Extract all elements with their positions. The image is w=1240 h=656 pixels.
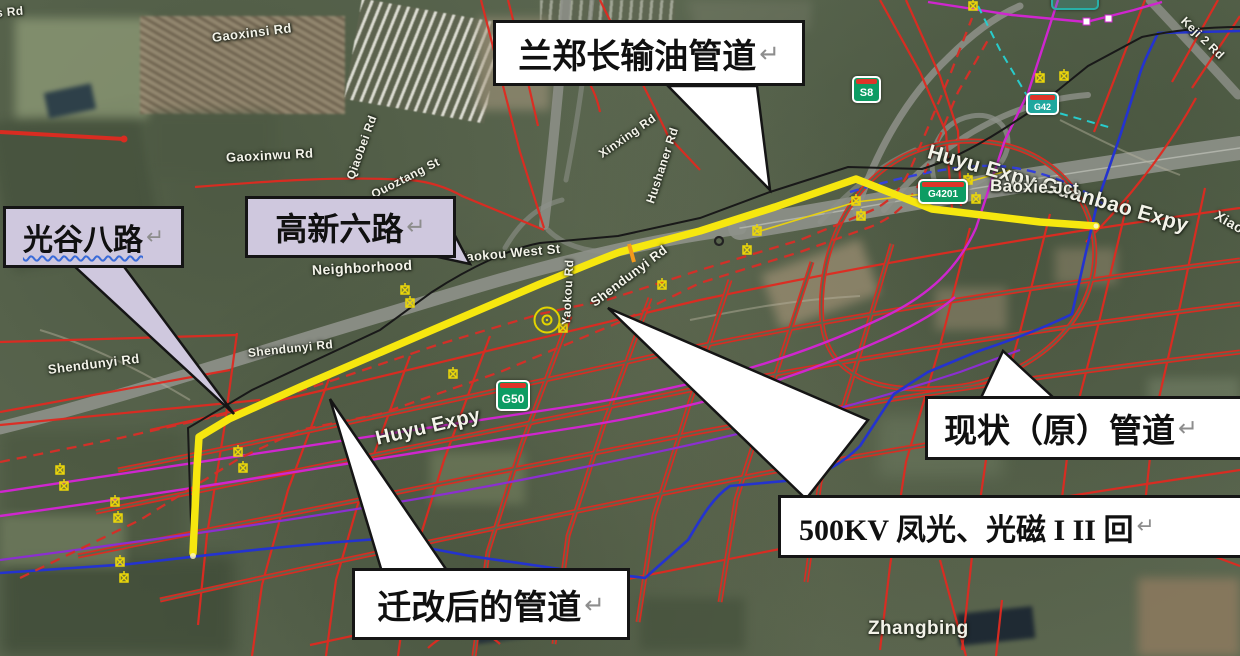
callout-text: 光谷八路 xyxy=(23,215,143,259)
callout-text: 500KV 凤光、光磁 I II 回 xyxy=(799,505,1133,549)
callout-text: 迁改后的管道 xyxy=(377,580,581,629)
return-mark-icon: ↵ xyxy=(406,214,425,240)
callout-lanzhengchang-pipeline: 兰郑长输油管道↵ xyxy=(493,20,805,86)
callout-text: 高新六路 xyxy=(275,204,403,250)
callout-pointer-lanzhengchang xyxy=(668,86,770,190)
callout-text: 现状（原）管道 xyxy=(944,404,1175,452)
callout-pointer-existing xyxy=(980,351,1056,400)
callout-relocated-pipeline: 迁改后的管道↵ xyxy=(352,568,630,640)
return-mark-icon: ↵ xyxy=(146,225,164,250)
callout-pointer-kv500 xyxy=(608,308,868,499)
return-mark-icon: ↵ xyxy=(584,590,605,619)
return-mark-icon: ↵ xyxy=(759,39,780,68)
callout-500kv-lines: 500KV 凤光、光磁 I II 回↵ xyxy=(778,495,1240,558)
callout-text: 兰郑长输油管道 xyxy=(518,29,756,78)
callout-guanggu-8th-road: 光谷八路↵ xyxy=(3,206,184,268)
callout-pointer-guanggu xyxy=(72,264,234,414)
callout-pointer-relocated xyxy=(330,399,448,572)
callout-gaoxin-6th-road: 高新六路↵ xyxy=(245,196,456,258)
callout-existing-pipeline: 现状（原）管道↵ xyxy=(925,396,1240,460)
return-mark-icon: ↵ xyxy=(1178,414,1198,442)
return-mark-icon: ↵ xyxy=(1136,514,1154,539)
pipeline-relocation-map[interactable]: s Rd Gaoxinsi Rd Gaoxinwu Rd Qiaobei Rd … xyxy=(0,0,1240,656)
